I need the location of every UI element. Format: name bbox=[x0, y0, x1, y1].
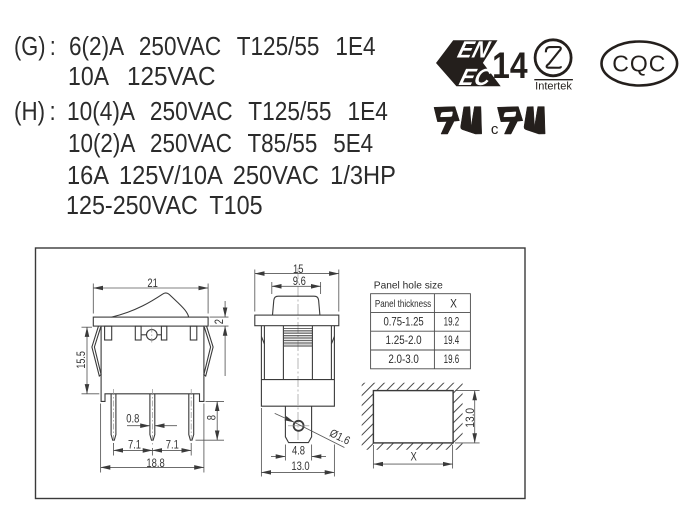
svg-text:0.75-1.25: 0.75-1.25 bbox=[383, 314, 424, 328]
svg-text:15.5: 15.5 bbox=[76, 351, 88, 369]
svg-text:0.8: 0.8 bbox=[126, 413, 139, 426]
svg-text:15: 15 bbox=[293, 263, 304, 276]
svg-text:4.8: 4.8 bbox=[292, 445, 305, 458]
svg-text:CQC: CQC bbox=[612, 51, 666, 77]
svg-text:21: 21 bbox=[147, 277, 158, 290]
svg-text:2.0-3.0: 2.0-3.0 bbox=[388, 352, 419, 366]
svg-text:7.1: 7.1 bbox=[128, 439, 141, 452]
svg-text:19.4: 19.4 bbox=[444, 333, 460, 347]
svg-text:X: X bbox=[450, 296, 457, 310]
svg-text:X: X bbox=[411, 451, 417, 464]
svg-text:EN: EN bbox=[455, 36, 494, 62]
svg-text:Panel thickness: Panel thickness bbox=[375, 299, 431, 310]
svg-text:18.8: 18.8 bbox=[146, 457, 164, 470]
svg-text:9.6: 9.6 bbox=[293, 275, 306, 288]
svg-text:Intertek: Intertek bbox=[535, 81, 572, 93]
svg-text:13.0: 13.0 bbox=[291, 460, 309, 473]
svg-text:14: 14 bbox=[492, 44, 528, 86]
svg-text:19.6: 19.6 bbox=[444, 352, 460, 366]
svg-text:7.1: 7.1 bbox=[166, 439, 179, 452]
svg-text:8: 8 bbox=[206, 415, 219, 420]
svg-text:1.25-2.0: 1.25-2.0 bbox=[386, 333, 422, 347]
svg-text:13.0: 13.0 bbox=[465, 408, 478, 428]
svg-text:19.2: 19.2 bbox=[444, 314, 460, 328]
svg-text:c: c bbox=[491, 121, 499, 138]
svg-text:2: 2 bbox=[213, 319, 226, 324]
svg-text:Panel hole size: Panel hole size bbox=[374, 280, 443, 292]
